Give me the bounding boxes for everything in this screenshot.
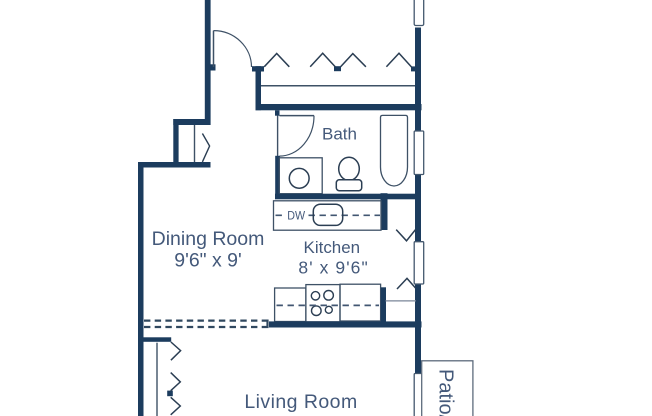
- svg-text:DW: DW: [287, 209, 305, 223]
- svg-text:Bath: Bath: [322, 125, 357, 144]
- svg-text:8' x 9'6": 8' x 9'6": [298, 258, 368, 278]
- svg-text:Dining Room: Dining Room: [152, 228, 265, 250]
- svg-text:Patio/Balcony: Patio/Balcony: [435, 369, 457, 416]
- svg-text:9'6" x 9': 9'6" x 9': [174, 250, 242, 272]
- svg-text:Kitchen: Kitchen: [304, 238, 361, 257]
- svg-text:Living Room: Living Room: [244, 391, 357, 413]
